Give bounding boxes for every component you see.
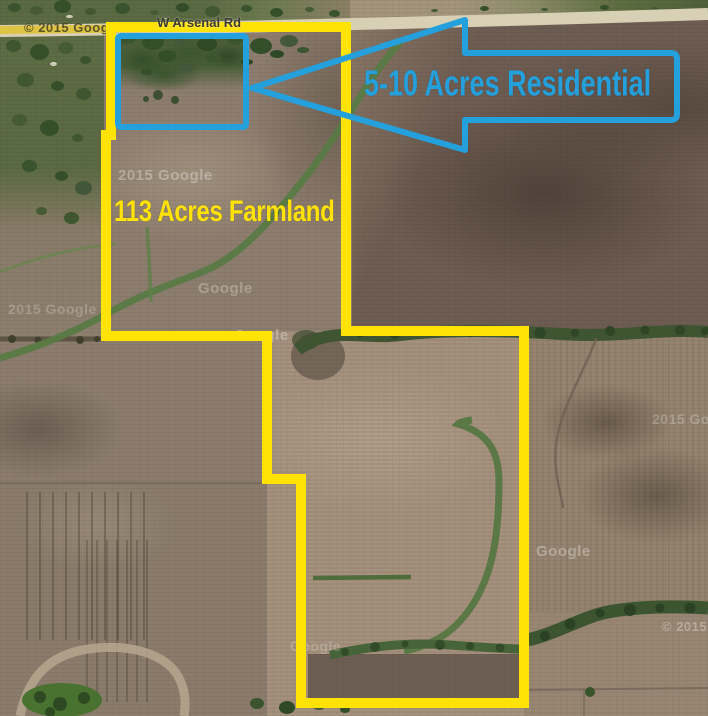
- satellite-map[interactable]: © 2015 Google 2015 Google Google 2015 Go…: [0, 0, 708, 716]
- road-name-label: W Arsenal Rd: [157, 16, 241, 29]
- annotation-layer: [0, 0, 708, 716]
- residential-area-rectangle: [118, 36, 246, 127]
- residential-acreage-label: 5-10 Acres Residential: [364, 66, 651, 102]
- farmland-acreage-label: 113 Acres Farmland: [114, 198, 335, 227]
